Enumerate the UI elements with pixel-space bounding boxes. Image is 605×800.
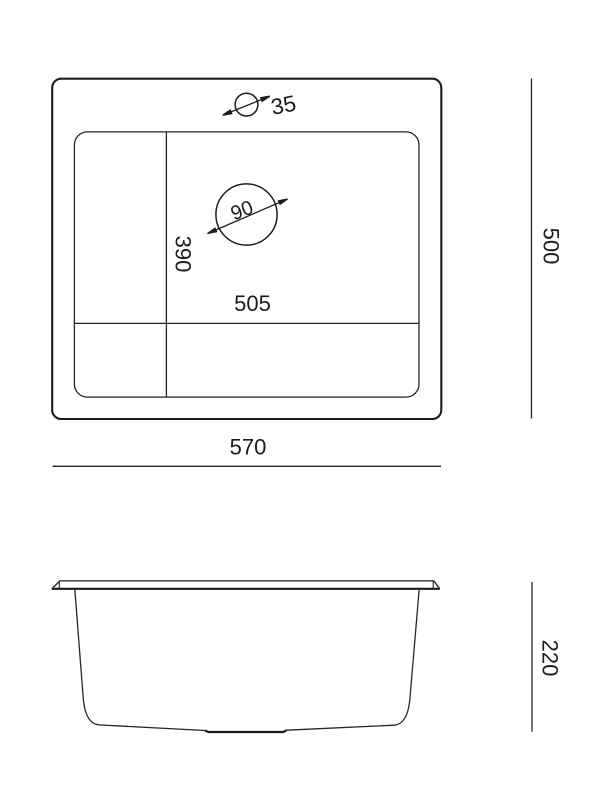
svg-text:570: 570	[230, 435, 267, 460]
svg-text:35: 35	[269, 91, 298, 120]
svg-text:220: 220	[538, 640, 563, 677]
svg-text:500: 500	[539, 228, 564, 265]
svg-text:390: 390	[171, 236, 196, 273]
svg-text:505: 505	[234, 291, 271, 316]
